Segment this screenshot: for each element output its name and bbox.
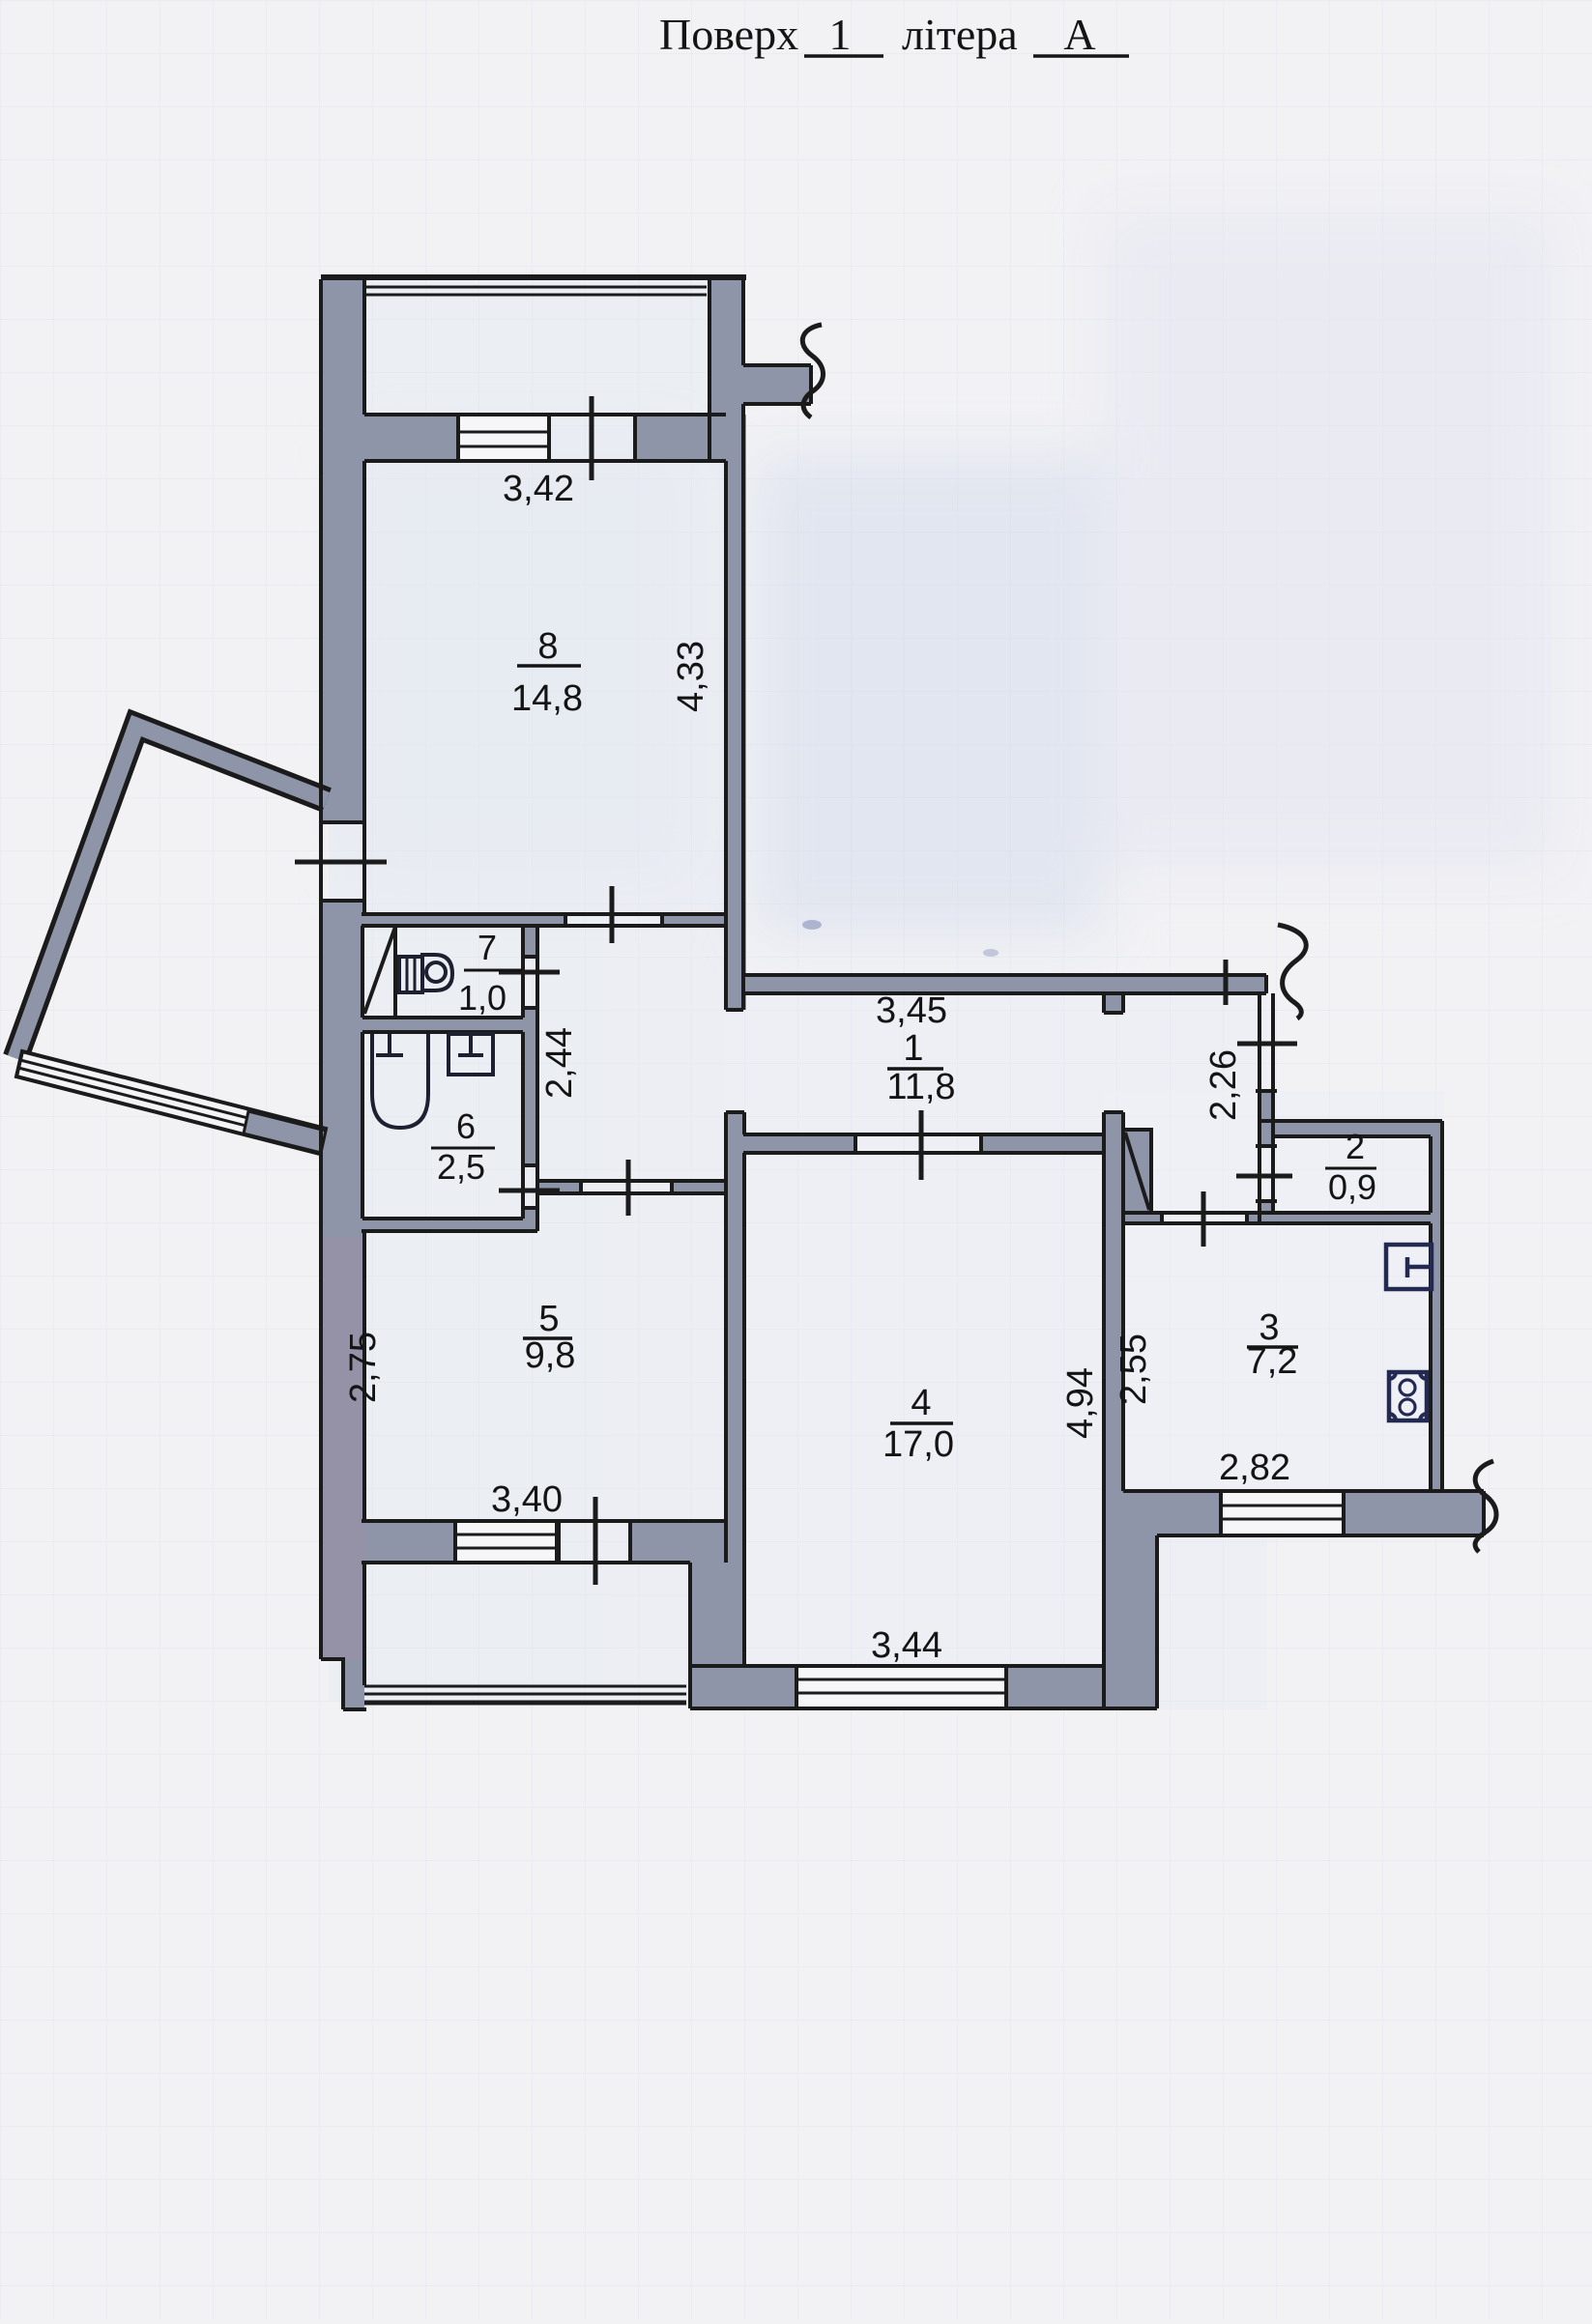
svg-text:8: 8 [537,626,558,667]
svg-text:Поверх: Поверх [659,10,798,59]
svg-text:2,75: 2,75 [343,1332,384,1403]
svg-text:5: 5 [538,1299,559,1339]
svg-text:літера: літера [902,10,1018,59]
svg-text:17,0: 17,0 [883,1424,954,1465]
svg-text:2,5: 2,5 [437,1147,485,1187]
svg-text:11,8: 11,8 [886,1067,955,1107]
svg-text:1,0: 1,0 [458,978,507,1018]
svg-text:3,42: 3,42 [503,469,574,509]
svg-text:1: 1 [829,10,852,59]
svg-text:0,9: 0,9 [1328,1167,1376,1207]
svg-text:9,8: 9,8 [525,1335,576,1376]
svg-text:2,26: 2,26 [1203,1049,1244,1121]
svg-text:3,45: 3,45 [876,990,947,1031]
svg-text:2,55: 2,55 [1114,1334,1154,1405]
svg-text:2,82: 2,82 [1219,1448,1290,1488]
svg-text:4: 4 [911,1383,931,1423]
svg-text:14,8: 14,8 [511,678,583,719]
svg-text:3,40: 3,40 [491,1479,563,1520]
svg-text:6: 6 [456,1106,476,1146]
svg-text:2,44: 2,44 [539,1027,580,1099]
svg-text:1: 1 [903,1028,923,1069]
svg-text:3,44: 3,44 [871,1625,942,1666]
svg-text:2: 2 [1346,1127,1365,1166]
svg-text:А: А [1063,10,1095,59]
svg-text:4,33: 4,33 [671,641,711,712]
svg-text:7,2: 7,2 [1247,1341,1298,1382]
svg-text:4,94: 4,94 [1060,1367,1101,1439]
svg-text:7: 7 [478,928,497,967]
